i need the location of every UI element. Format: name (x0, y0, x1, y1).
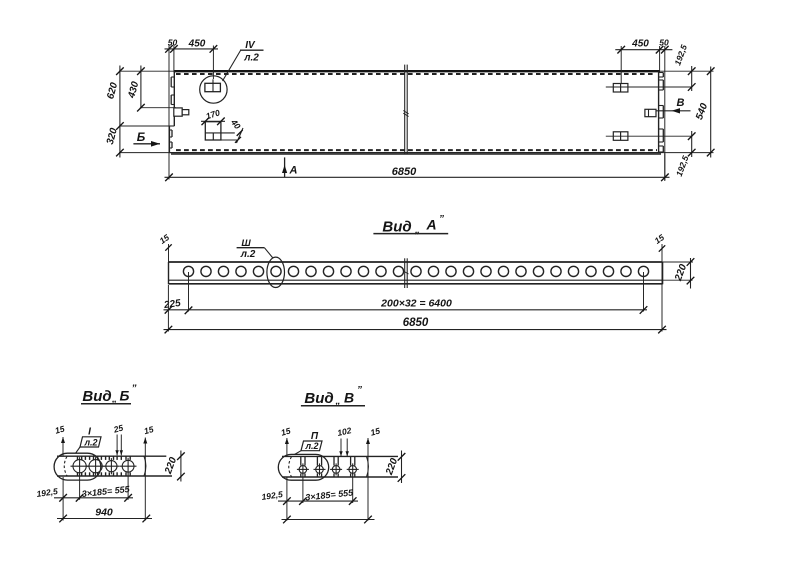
svg-text:450: 450 (188, 38, 206, 49)
svg-text:IV: IV (245, 40, 256, 51)
svg-text:Вид: Вид (304, 390, 333, 407)
svg-text:50: 50 (659, 38, 669, 48)
svg-text:П: П (311, 431, 319, 442)
svg-text:540: 540 (694, 102, 710, 122)
svg-text:192,5: 192,5 (672, 43, 689, 67)
svg-text:В: В (677, 97, 685, 109)
svg-text:15: 15 (653, 232, 667, 246)
svg-text:3×185= 555: 3×185= 555 (305, 487, 355, 502)
svg-text:15: 15 (158, 232, 172, 246)
svg-text:192,5: 192,5 (36, 486, 59, 499)
svg-text:192,5: 192,5 (674, 154, 691, 178)
svg-text:А: А (425, 217, 436, 233)
svg-text:А: А (289, 165, 298, 177)
svg-text:15: 15 (369, 425, 381, 437)
svg-text:15: 15 (280, 425, 292, 437)
svg-text:3×185= 555: 3×185= 555 (81, 484, 131, 499)
svg-text:450: 450 (631, 39, 649, 50)
svg-text:I: I (88, 427, 91, 438)
svg-text:6850: 6850 (403, 317, 429, 329)
svg-text:15: 15 (54, 423, 66, 435)
svg-text:”: ” (357, 385, 362, 396)
svg-text:л.2: л.2 (243, 53, 259, 64)
svg-text:л.2: л.2 (304, 441, 318, 451)
svg-text:25: 25 (112, 422, 125, 434)
svg-text:Б: Б (137, 130, 146, 144)
svg-text:430: 430 (126, 80, 141, 100)
svg-text:”: ” (439, 214, 444, 225)
svg-text:50: 50 (168, 38, 178, 48)
svg-text:Б: Б (120, 388, 130, 404)
svg-text:940: 940 (95, 507, 113, 519)
svg-text:15: 15 (143, 424, 155, 436)
svg-text:40: 40 (228, 117, 242, 132)
svg-text:6850: 6850 (392, 166, 417, 178)
svg-text:192,5: 192,5 (261, 489, 284, 502)
svg-text:320: 320 (105, 126, 120, 145)
svg-text:л.2: л.2 (240, 249, 256, 260)
svg-text:л.2: л.2 (83, 437, 97, 447)
svg-text:170: 170 (205, 107, 222, 121)
svg-text:220: 220 (163, 456, 180, 477)
svg-text:В: В (344, 390, 354, 406)
svg-text:620: 620 (105, 81, 120, 100)
svg-text:102: 102 (336, 425, 352, 438)
svg-text:”: ” (132, 384, 137, 395)
svg-text:Вид: Вид (82, 388, 111, 405)
svg-text:225: 225 (162, 298, 181, 311)
svg-text:200×32 = 6400: 200×32 = 6400 (380, 298, 452, 310)
